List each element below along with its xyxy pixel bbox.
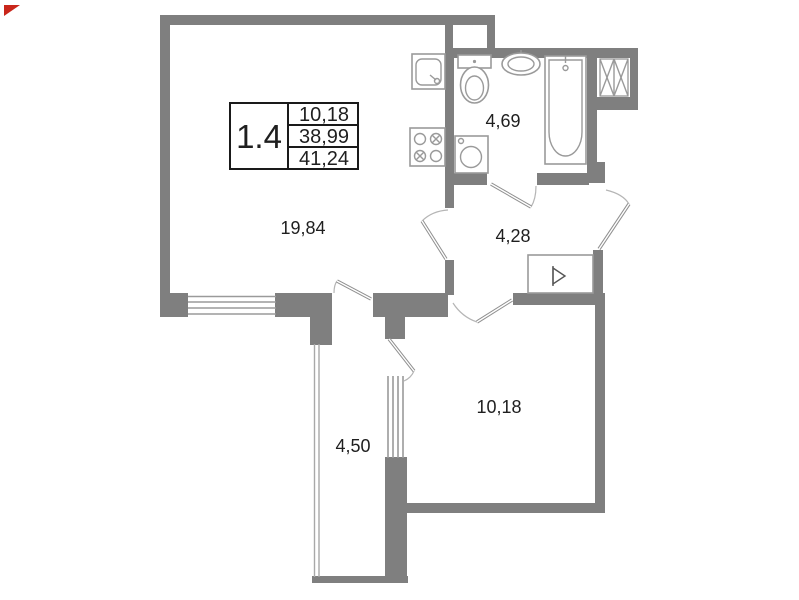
legend-value-living: 10,18 xyxy=(299,104,349,126)
wall-segment xyxy=(537,173,589,185)
bathtub-icon xyxy=(545,56,586,164)
legend-value-total: 38,99 xyxy=(299,126,349,148)
wall-segment xyxy=(312,576,408,583)
door-entrance xyxy=(599,190,629,249)
room-loggia-area xyxy=(319,345,385,576)
legend-unit-number: 1.4 xyxy=(236,118,282,155)
floorplan-drawing: 1.4 10,18 38,99 41,24 19,84 4,69 4,28 10… xyxy=(0,0,799,600)
legend-value-total-with-balcony: 41,24 xyxy=(299,148,349,170)
wall-segment xyxy=(595,305,605,513)
wall-segment xyxy=(160,15,495,25)
toilet-icon xyxy=(458,55,491,103)
window-living-room xyxy=(188,297,276,315)
wall-segment xyxy=(160,15,170,317)
wall-segment xyxy=(385,317,405,339)
wall-segment xyxy=(385,457,407,583)
legend-table: 1.4 10,18 38,99 41,24 xyxy=(230,103,358,170)
room-label-hallway: 4,28 xyxy=(495,226,530,246)
washing-machine-icon xyxy=(455,136,488,173)
kitchen-sink-icon xyxy=(412,54,445,89)
wall-segment xyxy=(448,173,487,185)
stove-icon xyxy=(410,128,445,166)
wall-segment xyxy=(373,293,448,317)
wall-segment xyxy=(587,162,605,183)
wall-segment xyxy=(310,317,332,345)
wall-segment xyxy=(160,293,188,317)
room-label-bedroom: 10,18 xyxy=(476,397,521,417)
wall-segment xyxy=(513,293,605,305)
vent-shaft-icon xyxy=(600,59,628,96)
wall-segment xyxy=(275,293,332,317)
wall-segment xyxy=(405,503,605,513)
wall-segment xyxy=(445,260,454,295)
red-marker-icon xyxy=(4,5,20,16)
closet-icon xyxy=(528,255,593,293)
room-label-bathroom: 4,69 xyxy=(485,111,520,131)
loggia-glazing xyxy=(315,344,320,577)
room-label-loggia: 4,50 xyxy=(335,436,370,456)
room-label-living-kitchen: 19,84 xyxy=(280,218,325,238)
floorplan-canvas: 1.4 10,18 38,99 41,24 19,84 4,69 4,28 10… xyxy=(0,0,799,600)
